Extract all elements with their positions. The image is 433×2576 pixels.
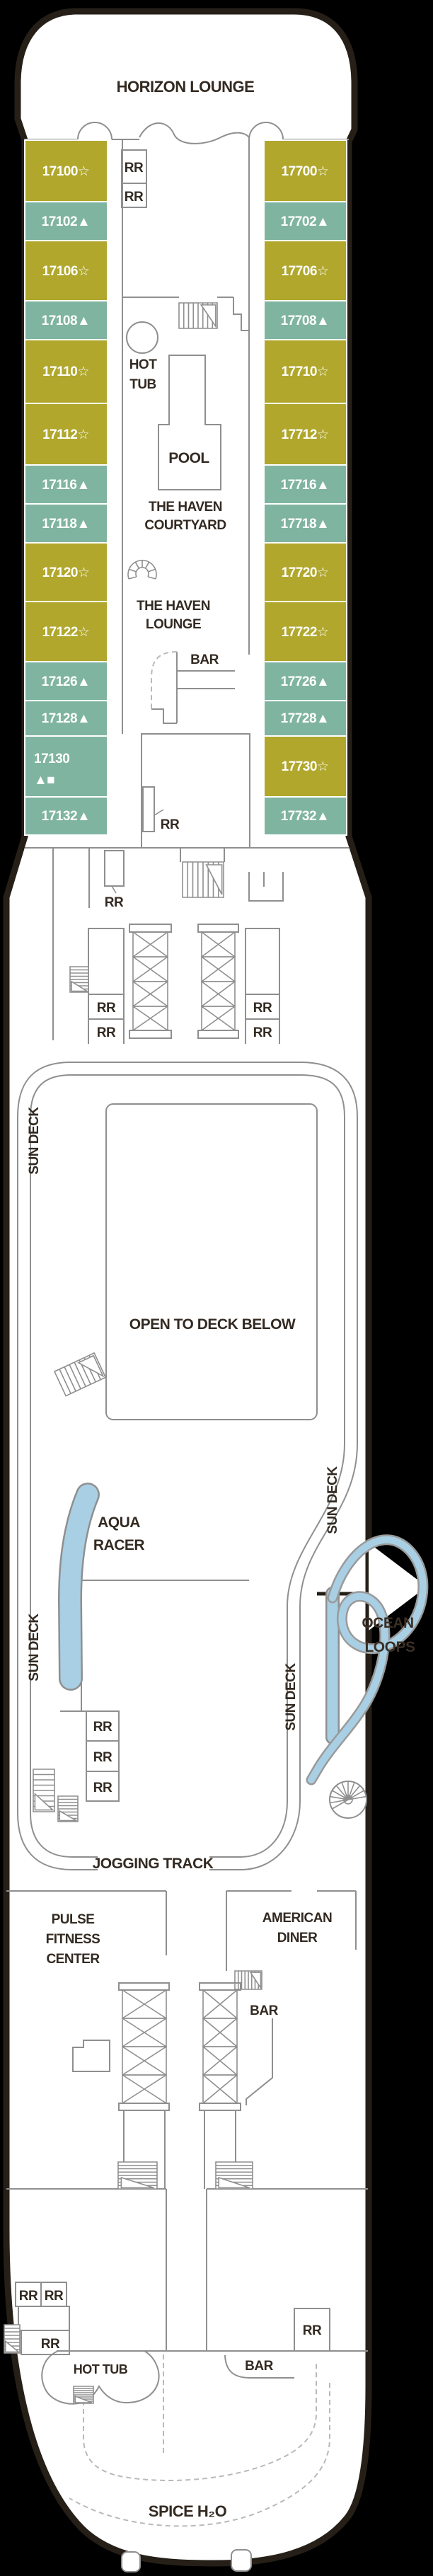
- pulse-fitness-label-line3: CENTER: [46, 1952, 100, 1967]
- cabin-17706: 17706☆: [264, 241, 347, 301]
- stairs-icon: [179, 303, 217, 328]
- cabin-17732: 17732▲: [264, 797, 347, 835]
- aqua-racer-label-line1: AQUA: [98, 1514, 140, 1531]
- cabin-label: 17730☆: [282, 759, 329, 774]
- cabin-17120: 17120☆: [25, 543, 108, 602]
- restroom-label: RR: [93, 1781, 112, 1795]
- american-diner-label-line1: AMERICAN: [262, 1911, 332, 1926]
- jogging-track-label: JOGGING TRACK: [93, 1856, 214, 1872]
- restroom-label: RR: [41, 2337, 60, 2352]
- stairs-icon: [74, 2386, 93, 2403]
- restroom-label: RR: [125, 161, 144, 176]
- cabin-17102: 17102▲: [25, 202, 108, 241]
- cabin-label: 17726▲: [281, 674, 330, 689]
- sun-deck-label: SUN DECK: [284, 1663, 299, 1731]
- restroom-label: RR: [253, 1001, 272, 1016]
- aqua-racer-label-line2: RACER: [93, 1537, 145, 1553]
- spiral-stairs-icon: [330, 1781, 366, 1818]
- stairs-icon: [118, 2162, 157, 2189]
- cabin-label: 17118▲: [42, 517, 90, 531]
- restroom-label: RR: [97, 1025, 116, 1040]
- cabin-17712: 17712☆: [264, 403, 347, 465]
- ocean-loops-label-line2: LOOPS: [364, 1639, 415, 1655]
- cabin-17700: 17700☆: [264, 140, 347, 202]
- cabin-label: 17722☆: [282, 625, 329, 640]
- cabin-17718: 17718▲: [264, 504, 347, 543]
- cabin-label: 17732▲: [281, 809, 330, 824]
- restroom-label: RR: [45, 2289, 64, 2304]
- cabin-label: 17718▲: [281, 517, 330, 531]
- restroom-label: RR: [97, 1001, 116, 1016]
- stern-bench-1: [122, 2552, 140, 2572]
- cabin-label: 17710☆: [282, 364, 329, 379]
- pulse-fitness-label-line1: PULSE: [52, 1912, 95, 1927]
- deck-plan-svg: 17100☆ 17102▲ 17106☆ 17108▲ 17110☆ 17112…: [0, 0, 433, 2576]
- cabin-17108: 17108▲: [25, 301, 108, 340]
- cabin-label: 17108▲: [42, 314, 91, 328]
- cabin-17726: 17726▲: [264, 662, 347, 701]
- american-diner-label-line2: DINER: [277, 1931, 318, 1945]
- cabin-column-left: 17100☆ 17102▲ 17106☆ 17108▲ 17110☆ 17112…: [25, 140, 108, 835]
- cabin-17112: 17112☆: [25, 403, 108, 465]
- cabin-label: 17102▲: [42, 214, 91, 229]
- cabin-17110: 17110☆: [25, 340, 108, 403]
- diner-bar-label: BAR: [250, 2003, 278, 2018]
- restroom-label: RR: [161, 817, 180, 832]
- cabin-17702: 17702▲: [264, 202, 347, 241]
- cabin-label: 17716▲: [281, 478, 330, 493]
- cabin-label: 17132▲: [42, 809, 91, 824]
- cabin-17722: 17722☆: [264, 602, 347, 662]
- haven-lounge-label-line2: LOUNGE: [146, 617, 201, 632]
- pool-label: POOL: [168, 450, 209, 466]
- cabin-label: 17116▲: [42, 478, 90, 493]
- hot-tub-label-line2: TUB: [129, 377, 156, 392]
- cabin-label: 17122☆: [42, 625, 90, 640]
- stairs-icon: [58, 1796, 78, 1822]
- cabin-label: 17712☆: [282, 427, 329, 442]
- sun-deck-label: SUN DECK: [27, 1107, 42, 1175]
- cabin-label: 17728▲: [281, 711, 330, 726]
- cabin-17122: 17122☆: [25, 602, 108, 662]
- cabin-17118: 17118▲: [25, 504, 108, 543]
- cabin-label: 17130: [34, 752, 69, 766]
- stairs-icon: [4, 2325, 20, 2353]
- cabin-label: 17126▲: [42, 674, 91, 689]
- haven-courtyard-label-line2: COURTYARD: [144, 518, 226, 533]
- stairs-icon: [70, 967, 88, 992]
- cabin-label: 17720☆: [282, 565, 329, 580]
- spice-h2o-label: SPICE H₂O: [149, 2502, 227, 2520]
- restroom-label: RR: [105, 895, 124, 910]
- cabin-label: 17100☆: [42, 164, 90, 179]
- cabin-label: 17702▲: [281, 214, 330, 229]
- cabin-17728: 17728▲: [264, 701, 347, 736]
- stern-hot-tub-label: HOT TUB: [74, 2362, 128, 2376]
- restroom-label: RR: [253, 1025, 272, 1040]
- stairs-icon: [33, 1769, 54, 1812]
- stairs-icon: [216, 2162, 253, 2189]
- cabin-17130: 17130▲■: [25, 736, 108, 797]
- hot-tub-label-line1: HOT: [129, 357, 158, 372]
- haven-lounge-label-line1: THE HAVEN: [137, 599, 210, 614]
- restroom-label: RR: [19, 2289, 38, 2304]
- cabin-17730: 17730☆: [264, 736, 347, 797]
- cabin-label: 17708▲: [281, 314, 330, 328]
- haven-courtyard-label-line1: THE HAVEN: [149, 500, 222, 514]
- sun-deck-label: SUN DECK: [325, 1466, 340, 1534]
- restroom-label: RR: [93, 1750, 112, 1765]
- cabin-label: 17112☆: [42, 427, 89, 442]
- restroom-label: RR: [303, 2323, 322, 2338]
- cabin-symbols: ▲■: [34, 773, 54, 788]
- cabin-label: 17106☆: [42, 264, 90, 279]
- cabin-17708: 17708▲: [264, 301, 347, 340]
- cabin-17128: 17128▲: [25, 701, 108, 736]
- cabin-17116: 17116▲: [25, 465, 108, 504]
- cabin-17106: 17106☆: [25, 241, 108, 301]
- sun-deck-label: SUN DECK: [27, 1614, 42, 1681]
- cabin-label: 17110☆: [42, 364, 89, 379]
- cabin-label: 17120☆: [42, 565, 90, 580]
- cabin-column-right: 17700☆ 17702▲ 17706☆ 17708▲ 17710☆ 17712…: [264, 140, 347, 835]
- cabin-17126: 17126▲: [25, 662, 108, 701]
- cabin-17720: 17720☆: [264, 543, 347, 602]
- stairs-icon: [183, 862, 224, 897]
- stairs-icon: [235, 1971, 262, 1989]
- deck-plan-page: 17100☆ 17102▲ 17106☆ 17108▲ 17110☆ 17112…: [0, 0, 433, 2576]
- cabin-label: 17706☆: [282, 264, 329, 279]
- cabin-17132: 17132▲: [25, 797, 108, 835]
- cabin-17716: 17716▲: [264, 465, 347, 504]
- cabin-label: 17700☆: [282, 164, 329, 179]
- horizon-lounge-label: HORIZON LOUNGE: [117, 78, 255, 96]
- stern-bench-2: [231, 2550, 251, 2571]
- cabin-17710: 17710☆: [264, 340, 347, 403]
- cabin-label: 17128▲: [42, 711, 91, 726]
- haven-bar-label: BAR: [190, 652, 219, 667]
- open-to-deck-below-label: OPEN TO DECK BELOW: [129, 1316, 296, 1333]
- restroom-label: RR: [125, 190, 144, 205]
- ocean-loops-label-line1: OCEAN: [362, 1615, 413, 1631]
- stern-bar-label: BAR: [245, 2359, 273, 2374]
- pulse-fitness-label-line2: FITNESS: [46, 1932, 100, 1947]
- restroom-label: RR: [93, 1720, 112, 1735]
- cabin-17100: 17100☆: [25, 140, 108, 202]
